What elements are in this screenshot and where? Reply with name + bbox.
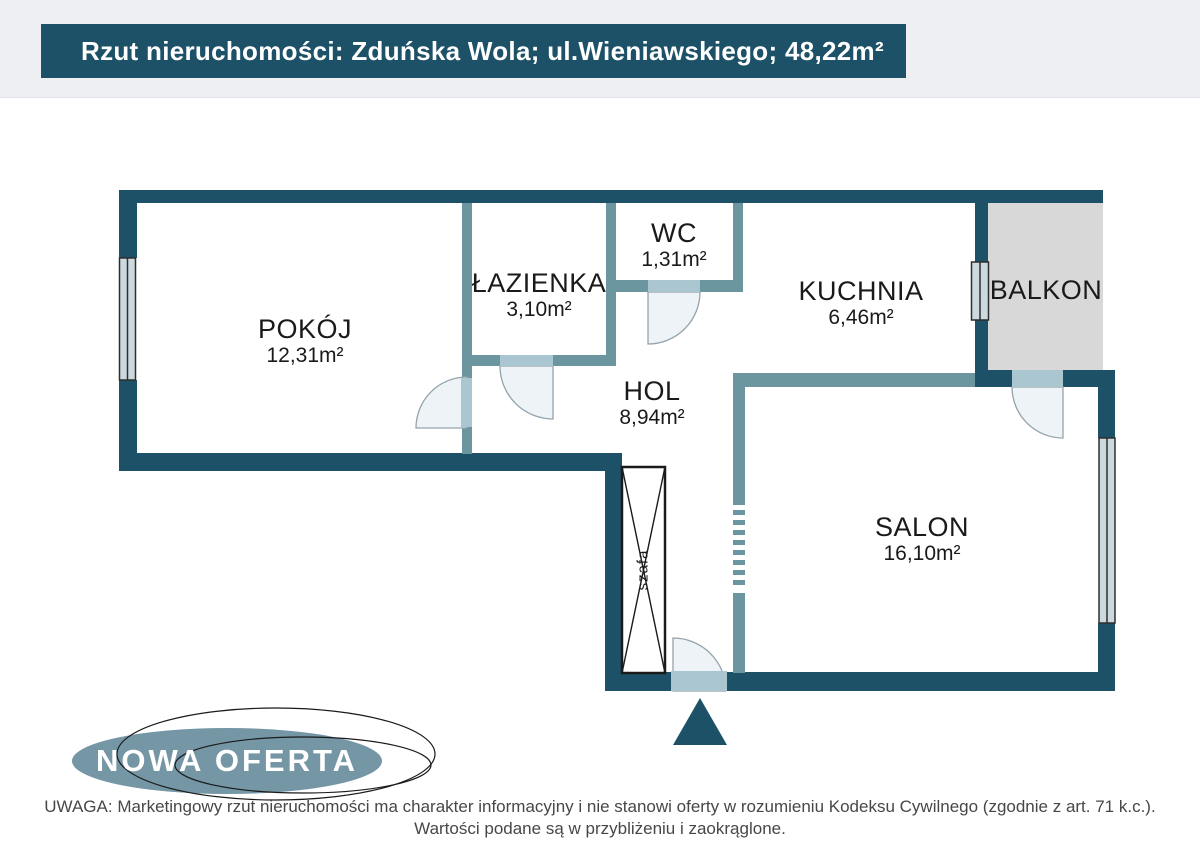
wardrobe-label: szafa xyxy=(635,550,652,591)
room-area: 16,10m² xyxy=(875,542,969,566)
room-name: KUCHNIA xyxy=(798,276,923,306)
door-leaf-pokoj xyxy=(461,378,472,427)
room-name: HOL xyxy=(619,376,684,406)
room-label-wc: WC 1,31m² xyxy=(641,218,706,272)
window-pokoj xyxy=(120,258,136,380)
door-swing-wc xyxy=(648,292,700,344)
floorplan-drawing xyxy=(0,0,1200,860)
outer-walls xyxy=(119,190,1115,691)
room-area: 12,31m² xyxy=(258,344,352,368)
room-label-kuchnia: KUCHNIA 6,46m² xyxy=(798,276,923,330)
door-swing-balkon xyxy=(1012,387,1063,438)
room-label-hol: HOL 8,94m² xyxy=(619,376,684,430)
window-balkon xyxy=(972,262,989,320)
door-swing-pokoj xyxy=(416,377,467,428)
room-name: WC xyxy=(641,218,706,248)
door-leaf-wc xyxy=(648,280,700,292)
room-area: 8,94m² xyxy=(619,406,684,430)
room-label-pokoj: POKÓJ 12,31m² xyxy=(258,314,352,368)
door-leaf-entrance xyxy=(671,671,727,691)
badge-label: NOWA OFERTA xyxy=(96,743,358,779)
room-label-balkon: BALKON xyxy=(990,275,1103,305)
dashed-wall xyxy=(733,500,745,585)
room-name: POKÓJ xyxy=(258,314,352,344)
footer-disclaimer-line2: Wartości podane są w przybliżeniu i zaok… xyxy=(0,818,1200,840)
room-name: BALKON xyxy=(990,275,1103,305)
room-area: 3,10m² xyxy=(472,298,607,322)
entrance-arrow-icon xyxy=(673,698,727,745)
door-leaves xyxy=(461,280,1063,691)
room-label-salon: SALON 16,10m² xyxy=(875,512,969,566)
room-area: 1,31m² xyxy=(641,248,706,272)
window-salon xyxy=(1099,438,1115,623)
footer-disclaimer-line1: UWAGA: Marketingowy rzut nieruchomości m… xyxy=(0,796,1200,818)
room-label-lazienka: ŁAZIENKA 3,10m² xyxy=(472,268,607,322)
door-swing-lazienka xyxy=(500,366,553,419)
door-leaf-balkon xyxy=(1012,370,1063,387)
room-name: SALON xyxy=(875,512,969,542)
page: Rzut nieruchomości: Zduńska Wola; ul.Wie… xyxy=(0,0,1200,860)
room-area: 6,46m² xyxy=(798,306,923,330)
door-leaf-lazienka xyxy=(500,355,553,366)
room-name: ŁAZIENKA xyxy=(472,268,607,298)
